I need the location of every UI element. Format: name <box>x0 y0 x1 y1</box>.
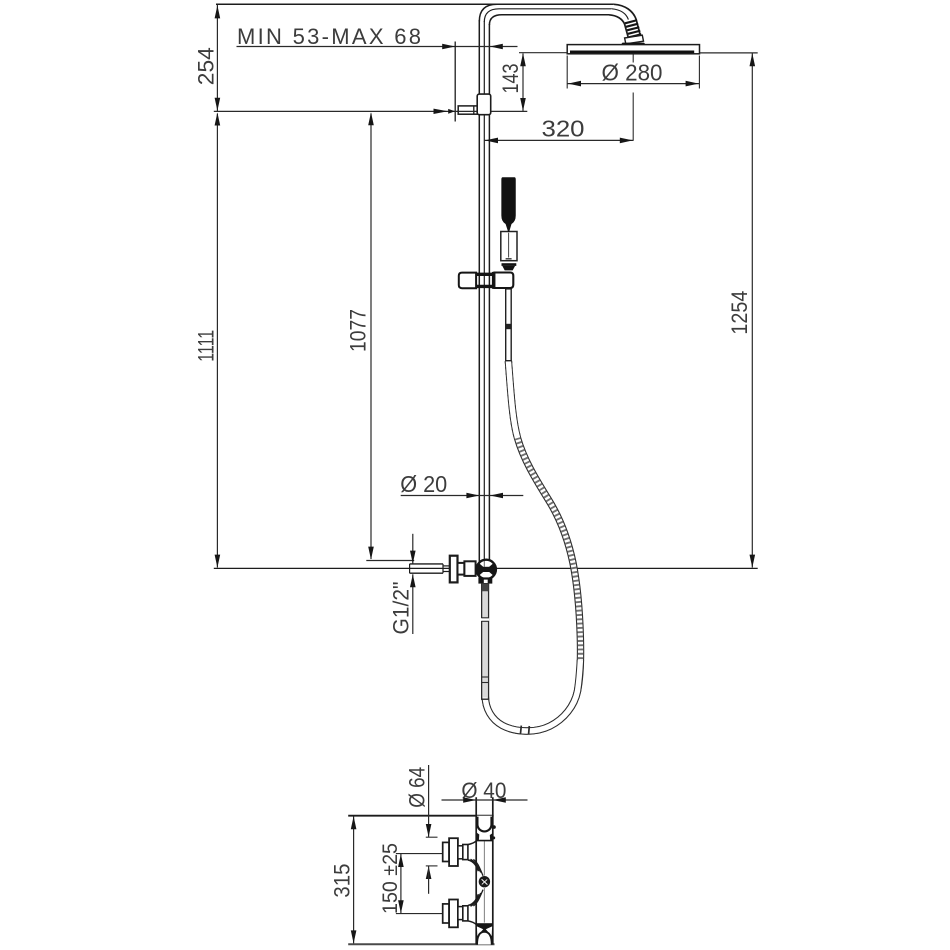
svg-text:1254: 1254 <box>727 291 752 335</box>
svg-text:143: 143 <box>498 64 523 94</box>
svg-text:315: 315 <box>330 864 355 898</box>
svg-text:150 ±25: 150 ±25 <box>379 843 402 914</box>
svg-text:Ø 280: Ø 280 <box>602 60 663 86</box>
svg-text:1111: 1111 <box>194 330 219 362</box>
svg-text:Ø 20: Ø 20 <box>400 471 447 497</box>
svg-text:254: 254 <box>194 47 219 85</box>
svg-text:G1/2": G1/2" <box>389 582 414 635</box>
svg-text:1077: 1077 <box>346 309 371 352</box>
svg-text:Ø 64: Ø 64 <box>405 767 430 808</box>
svg-text:MIN 53-MAX 68: MIN 53-MAX 68 <box>237 24 421 49</box>
svg-text:320: 320 <box>542 116 585 142</box>
